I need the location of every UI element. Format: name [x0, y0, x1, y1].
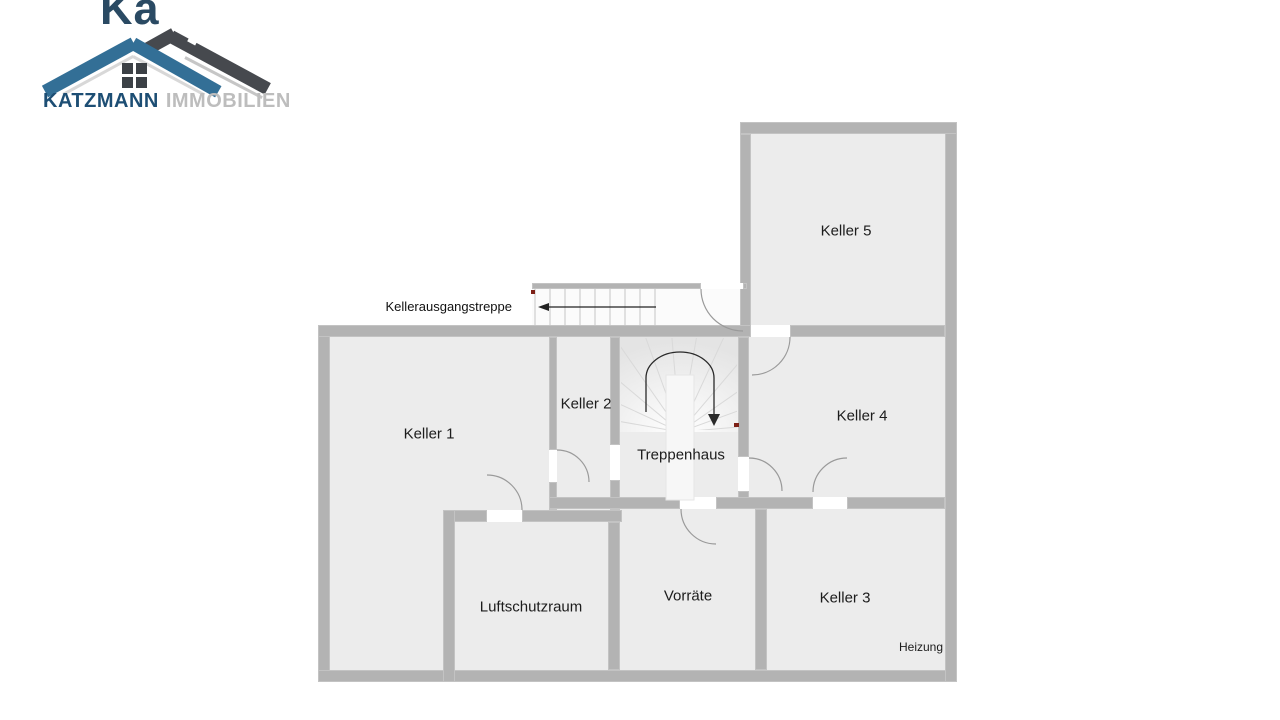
label-kellerausgangstreppe: Kellerausgangstreppe — [386, 299, 512, 314]
wall — [716, 497, 813, 509]
wall — [318, 325, 751, 337]
door-opening — [751, 325, 790, 337]
wall — [443, 510, 455, 682]
wall — [847, 497, 945, 509]
logo-window-icon — [122, 63, 147, 88]
logo-watermark-fragment: Ka — [100, 0, 160, 35]
wall — [610, 337, 620, 445]
label-heizung: Heizung — [899, 640, 943, 654]
room-label-keller-2: Keller 2 — [561, 396, 612, 413]
brand-suffix: IMMOBILIEN — [166, 90, 291, 112]
door-opening — [487, 510, 522, 522]
wall — [549, 337, 557, 450]
door-opening — [549, 450, 557, 482]
wall — [318, 670, 957, 682]
page: Ka KATZMANNIMMOBILIEN — [0, 0, 1280, 720]
wall — [522, 510, 622, 522]
wall — [740, 134, 751, 337]
door-opening — [738, 457, 749, 491]
wall — [743, 283, 747, 289]
brand-text: KATZMANNIMMOBILIEN — [43, 90, 291, 113]
room-label-keller-1: Keller 1 — [404, 426, 455, 443]
wall — [549, 497, 680, 509]
door-opening — [680, 497, 716, 509]
wall — [945, 122, 957, 682]
room-label-keller-4: Keller 4 — [837, 408, 888, 425]
room-label-vorraete: Vorräte — [664, 588, 712, 605]
wall — [740, 122, 957, 134]
wall — [532, 283, 701, 289]
exit-stair-corridor — [532, 289, 740, 325]
brand-name: KATZMANN — [43, 90, 159, 112]
wall — [608, 522, 620, 670]
room-label-keller-3: Keller 3 — [820, 590, 871, 607]
door-opening — [610, 445, 620, 480]
room-label-keller-5: Keller 5 — [821, 223, 872, 240]
door-opening — [813, 497, 847, 509]
wall — [755, 509, 767, 670]
door-opening — [701, 283, 743, 289]
room-label-luftschutzraum: Luftschutzraum — [480, 599, 583, 616]
wall — [738, 337, 749, 457]
room-label-treppenhaus: Treppenhaus — [637, 447, 725, 464]
wall — [318, 325, 330, 682]
wall — [790, 325, 945, 337]
